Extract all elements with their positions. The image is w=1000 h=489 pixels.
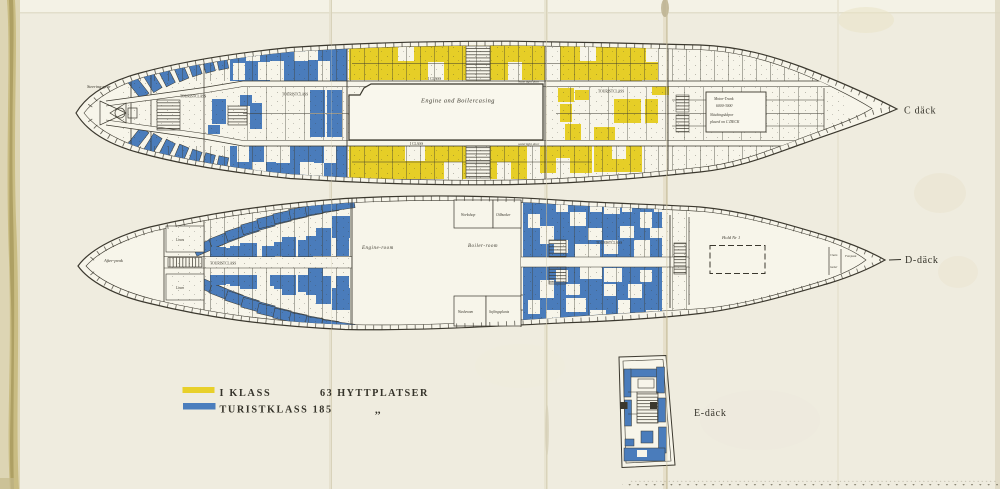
svg-text:D-däck: D-däck [905, 255, 939, 266]
svg-text:locker: locker [830, 265, 838, 269]
svg-text:Steering-gear: Steering-gear [87, 84, 111, 89]
svg-text:,,: ,, [375, 404, 381, 416]
svg-text:Chain: Chain [830, 253, 838, 257]
svg-text:TOURISTCLASS: TOURISTCLASS [282, 93, 308, 97]
svg-text:Oilbunker: Oilbunker [496, 213, 511, 217]
svg-text:E-däck: E-däck [694, 408, 727, 419]
svg-text:63 HYTTPLATSER: 63 HYTTPLATSER [320, 388, 429, 399]
svg-text:Forepeak: Forepeak [844, 254, 857, 258]
svg-text:C däck: C däck [904, 106, 936, 117]
svg-text:I CLASS: I CLASS [410, 142, 423, 146]
svg-text:placed on C DECK: placed on C DECK [709, 120, 740, 124]
svg-text:Boiler-room: Boiler-room [468, 244, 498, 249]
svg-text:Engine-room: Engine-room [361, 246, 394, 251]
svg-text:Sejlingsplants: Sejlingsplants [489, 310, 510, 314]
svg-text:TURISTKLASS 185: TURISTKLASS 185 [220, 405, 333, 416]
svg-text:Engine and Boilercasing: Engine and Boilercasing [420, 98, 495, 105]
svg-text:6000-3000: 6000-3000 [716, 104, 733, 108]
svg-text:TOURISTCLASS: TOURISTCLASS [596, 241, 622, 245]
svg-text:Motor-Trunk: Motor-Trunk [713, 97, 734, 101]
svg-text:I KLASS: I KLASS [220, 388, 272, 399]
svg-text:Washroom: Washroom [458, 310, 474, 314]
svg-text:Släckingskåpor: Släckingskåpor [710, 112, 734, 117]
svg-text:Hold Nr 1: Hold Nr 1 [721, 235, 740, 240]
svg-text:I CLASS: I CLASS [428, 77, 441, 81]
svg-text:watertight door: watertight door [518, 80, 540, 84]
svg-text:TOURISTCLASS: TOURISTCLASS [598, 90, 624, 94]
svg-text:TOURISTCLASS: TOURISTCLASS [180, 95, 206, 99]
svg-text:After-peak: After-peak [103, 258, 124, 263]
svg-text:Workshop: Workshop [461, 213, 475, 217]
svg-text:watertight door: watertight door [518, 142, 540, 146]
